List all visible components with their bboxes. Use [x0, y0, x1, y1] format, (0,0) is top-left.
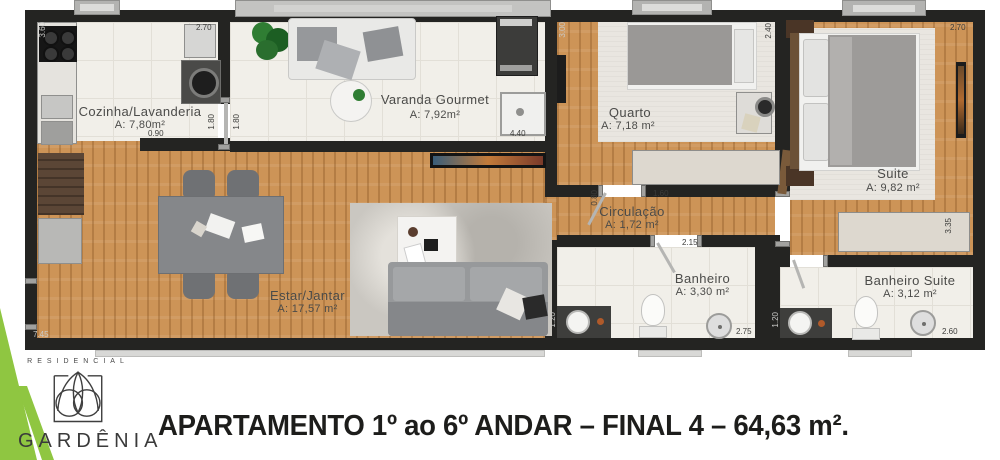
wall [230, 141, 557, 152]
gardenia-flower-icon [18, 367, 138, 430]
window-sill [95, 350, 545, 357]
cushion [363, 26, 404, 62]
burner [60, 46, 76, 62]
pillow [803, 39, 829, 97]
room-label-suite: Suite [843, 166, 943, 181]
wall [557, 235, 655, 247]
soap [597, 318, 604, 325]
room-label-banheiro: Banheiro [650, 271, 755, 286]
dim-suite-top: 2.70 [950, 23, 966, 32]
wall [700, 235, 755, 247]
window-sill [848, 350, 912, 357]
dim-living-w: 7.45 [33, 330, 49, 339]
sofa-varanda [288, 18, 416, 80]
door-frame [650, 235, 655, 247]
window [842, 0, 926, 16]
room-label-estar: Estar/Jantar [250, 288, 365, 303]
washer-door [189, 68, 219, 98]
bsuite-sink [788, 311, 812, 335]
burner [60, 30, 76, 46]
nightstand-quarto [736, 92, 772, 134]
banheiro-sink [566, 310, 590, 334]
lamp [755, 97, 775, 117]
grill-top [500, 19, 532, 26]
cabinet [38, 153, 84, 215]
room-label-circulacao: Circulação [582, 204, 682, 219]
room-area-quarto: A: 7,18 m² [578, 120, 678, 132]
grill [496, 16, 538, 76]
door-frame [641, 185, 646, 197]
room-area-estar: A: 17,57 m² [250, 303, 365, 315]
dim-quarto-left: 3.00 [558, 22, 567, 38]
dim-kitchen-left: 3.60 [38, 22, 47, 38]
room-area-varanda: A: 7,92m² [360, 109, 510, 121]
brand-name: GARDÊNIA [18, 430, 138, 453]
balcony-parapet [235, 0, 551, 17]
decor [191, 221, 207, 237]
dim-banheiro-w: 2.75 [736, 327, 752, 336]
placemat [242, 223, 265, 243]
wall [828, 255, 973, 267]
bsuite-shower [910, 310, 936, 336]
brand-label: RESIDENCIAL [18, 358, 138, 365]
tv-quarto [557, 55, 566, 103]
dim-circ-b: 1.60 [653, 189, 669, 198]
grill-shelf [500, 65, 532, 71]
window [632, 0, 712, 15]
chair [183, 170, 215, 197]
tv-screen [433, 156, 543, 165]
floorplan-page: Cozinha/Lavanderia A: 7,80m² Varanda Gou… [0, 0, 1000, 460]
banheiro-toilet-tank [639, 326, 667, 338]
door-frame [823, 255, 828, 267]
dim-bsuite-w: 2.60 [942, 327, 958, 336]
dim-laundry-a: 1.80 [207, 114, 216, 130]
dim-kitchen-top: 2.70 [196, 23, 212, 32]
dining-table [158, 196, 284, 274]
room-label-varanda: Varanda Gourmet [360, 92, 510, 107]
door-frame [218, 144, 230, 150]
brand-logo: RESIDENCIAL GARDÊNIA [18, 358, 138, 453]
throw [315, 40, 360, 80]
dim-quarto-right: 2.40 [764, 23, 773, 39]
blanket-fold [830, 37, 852, 165]
decor [408, 227, 418, 237]
wall [25, 10, 37, 350]
tv-suite [956, 62, 966, 138]
tv-screen [958, 66, 964, 134]
decor [424, 239, 438, 251]
blanket [628, 25, 732, 85]
plant-leaf [256, 40, 278, 60]
bsuite-toilet-tank [852, 328, 880, 340]
room-area-circulacao: A: 1,72 m² [582, 219, 682, 231]
room-label-cozinha: Cozinha/Lavanderia [55, 104, 225, 119]
dim-bsuite-h: 1.20 [771, 312, 780, 328]
placemat [205, 213, 236, 239]
plan-headline: APARTAMENTO 1º ao 6º ANDAR – FINAL 4 – 6… [158, 410, 849, 443]
dim-varanda: 4.40 [510, 129, 526, 138]
room-area-suite: A: 9,82 m² [843, 182, 943, 194]
room-area-cozinha: A: 7,80m² [55, 119, 225, 131]
wall [545, 10, 557, 197]
wall [140, 138, 230, 151]
dim-laundry-b: 1.80 [232, 114, 241, 130]
appliance [38, 218, 82, 264]
door-frame [775, 241, 790, 247]
bed-suite [790, 33, 918, 169]
pillow [522, 294, 547, 319]
room-area-banheiro-suite: A: 3,12 m² [845, 288, 975, 300]
sofa-living [388, 262, 548, 336]
bsuite-toilet [854, 296, 878, 328]
wall [780, 255, 790, 267]
dim-kitchen-opening: 0.90 [148, 129, 164, 138]
dim-banheiro-h: 1.20 [548, 312, 557, 328]
pillow [734, 29, 754, 83]
bed-quarto [627, 22, 757, 90]
room-label-quarto: Quarto [580, 105, 680, 120]
cushion [393, 267, 465, 301]
wall [25, 338, 985, 350]
chair [183, 272, 215, 299]
banheiro-toilet [641, 294, 665, 326]
drain [516, 108, 524, 116]
tv-living [430, 153, 546, 168]
banheiro-shower [706, 313, 732, 339]
soap [818, 320, 825, 327]
window-sill [638, 350, 702, 357]
washer [181, 60, 221, 104]
room-area-banheiro: A: 3,30 m² [650, 286, 755, 298]
dim-circ-c: 2.15 [682, 238, 698, 247]
entry-door-frame [25, 278, 37, 284]
dim-suite-side: 3.35 [944, 218, 953, 234]
rug-quarto [632, 150, 780, 185]
burner [43, 46, 59, 62]
pillow [803, 103, 829, 161]
book [741, 113, 761, 133]
window [74, 0, 120, 15]
dim-circ-a: 0.80 [590, 190, 599, 206]
chair [227, 170, 259, 197]
wall [755, 235, 780, 350]
room-label-banheiro-suite: Banheiro Suite [845, 273, 975, 288]
